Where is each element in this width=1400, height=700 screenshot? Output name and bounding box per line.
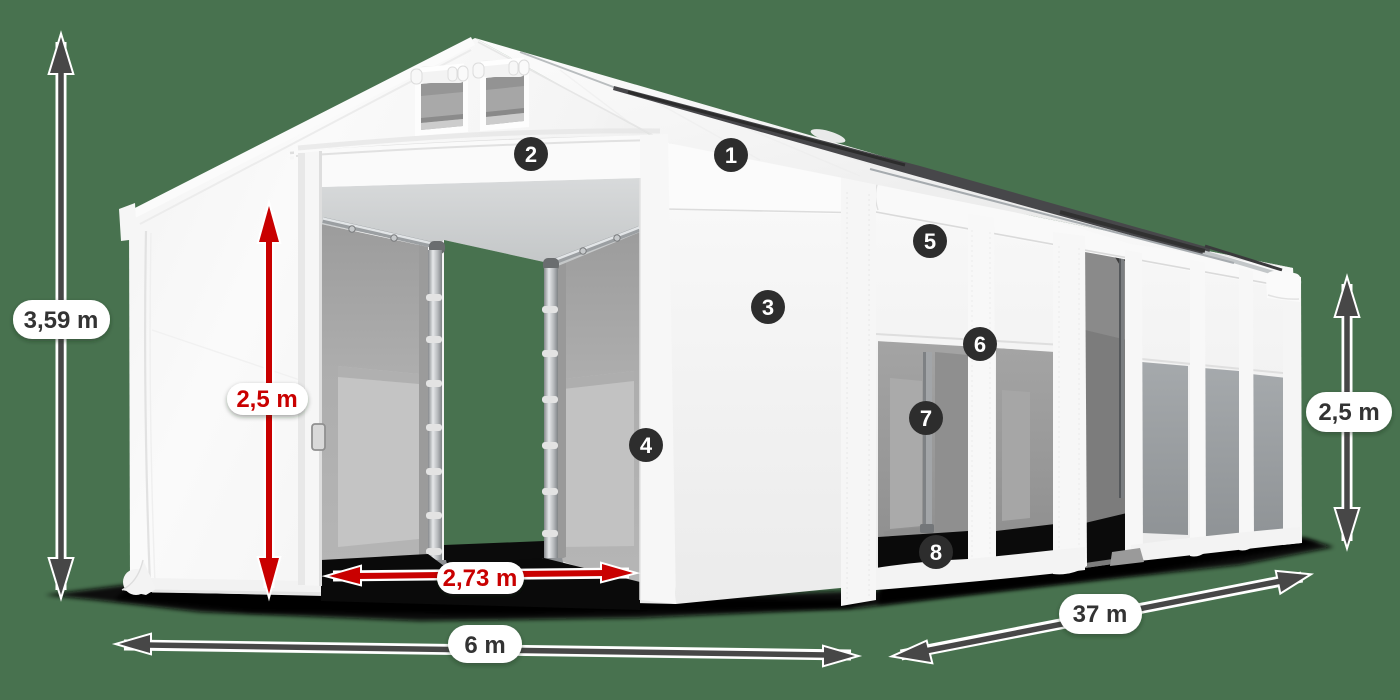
svg-text:7: 7 (920, 406, 932, 431)
svg-text:4: 4 (640, 433, 653, 458)
svg-text:8: 8 (930, 540, 942, 565)
svg-text:6 m: 6 m (464, 632, 505, 659)
svg-text:5: 5 (924, 229, 936, 254)
svg-text:37 m: 37 m (1073, 601, 1128, 628)
svg-text:3: 3 (762, 295, 774, 320)
svg-text:6: 6 (974, 332, 986, 357)
svg-text:2,5 m: 2,5 m (236, 386, 297, 413)
svg-text:2: 2 (525, 142, 537, 167)
svg-text:2,73 m: 2,73 m (443, 565, 518, 592)
svg-text:3,59 m: 3,59 m (24, 307, 99, 334)
svg-text:2,5 m: 2,5 m (1318, 399, 1379, 426)
svg-text:1: 1 (725, 143, 737, 168)
